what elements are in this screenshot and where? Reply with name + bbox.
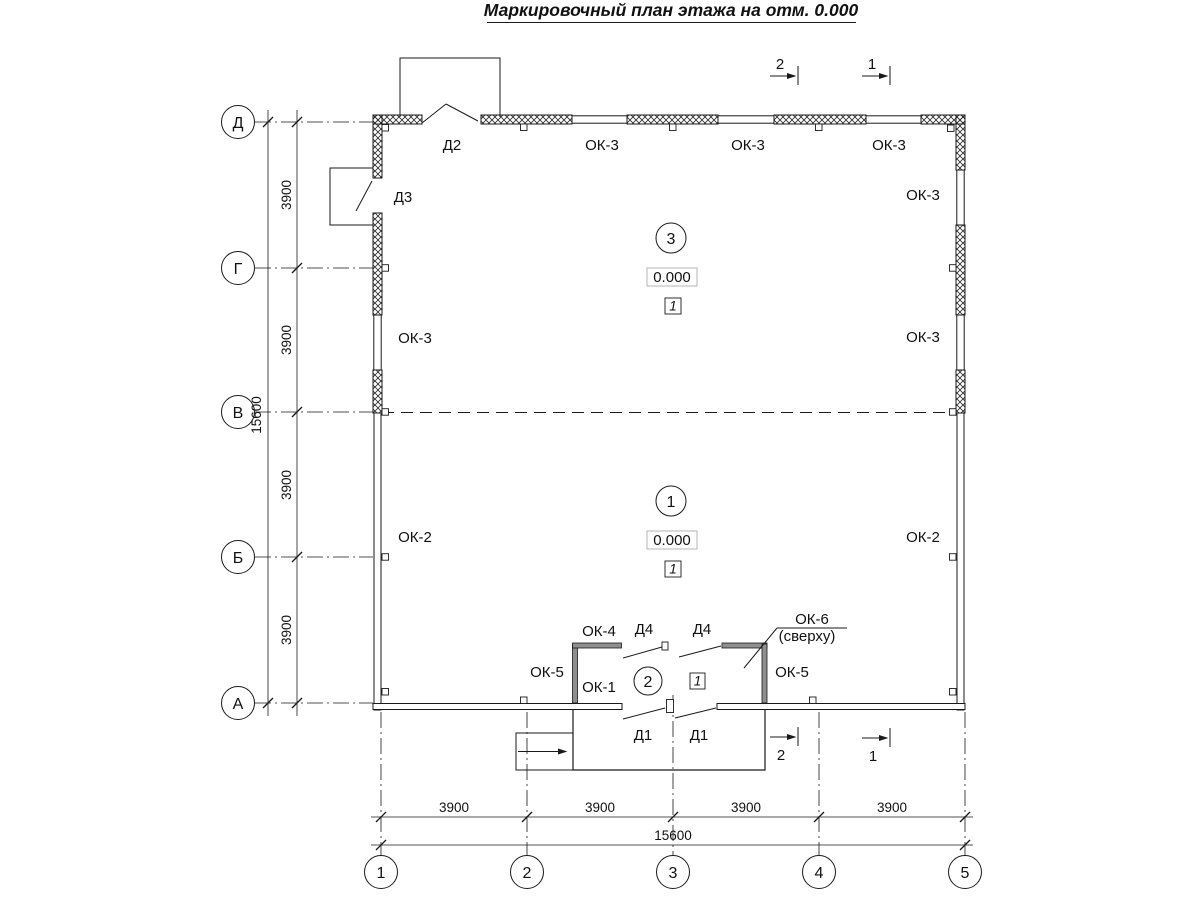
section-2-bottom-label: 2 <box>777 747 785 764</box>
bottom-wall-right <box>717 704 965 710</box>
label-ok3-top-2: ОК-3 <box>731 137 765 154</box>
section-2-top-label: 2 <box>776 56 784 73</box>
axis-label-col-3: 3 <box>669 865 678 882</box>
room-number-vestibule: 2 <box>644 674 653 691</box>
floor-plan-drawing: Маркировочный план этажа на отм. 0.000 Д… <box>0 0 1200 900</box>
dim-left-seg-3: 3900 <box>279 470 294 500</box>
label-ok4: ОК-4 <box>582 623 616 640</box>
title-block: Маркировочный план этажа на отм. 0.000 <box>484 0 859 23</box>
dim-bottom-total: 15600 <box>654 828 692 843</box>
window-ok3-top-3 <box>866 116 921 123</box>
window-ok3-top-1 <box>572 116 627 123</box>
level-mark-lower: 0.000 <box>653 532 691 549</box>
room-marker-lower: 1 0.000 1 <box>647 486 697 577</box>
door-d3-leaf <box>356 181 372 211</box>
label-ok2-right: ОК-2 <box>906 529 940 546</box>
label-ok3-top-3: ОК-3 <box>872 137 906 154</box>
section-1-top-label: 1 <box>868 56 876 73</box>
axis-label-row-3: В <box>233 405 244 422</box>
label-ok3-top-1: ОК-3 <box>585 137 619 154</box>
sill-markers <box>382 124 956 704</box>
window-ok3-top-2 <box>718 116 774 123</box>
mark-labels: Д2 Д3 ОК-3 ОК-3 ОК-3 ОК-3 ОК-3 ОК-3 ОК-2… <box>394 137 940 744</box>
label-d1-1: Д1 <box>634 727 653 744</box>
label-ok5-left: ОК-5 <box>530 664 564 681</box>
label-ok6: ОК-6 <box>795 611 829 628</box>
dim-left-total: 15600 <box>249 396 264 434</box>
axis-label-col-2: 2 <box>523 865 532 882</box>
door-d3-porch <box>330 168 373 225</box>
floor-type-vestibule: 1 <box>694 674 702 689</box>
label-d4-2: Д4 <box>693 621 712 638</box>
floor-type-upper: 1 <box>669 299 677 314</box>
label-ok3-right-2: ОК-3 <box>906 329 940 346</box>
door-d4-mullion <box>662 642 668 650</box>
window-band-ok2-left <box>374 413 381 710</box>
axis-label-row-4: Б <box>233 550 244 567</box>
room-number-lower: 1 <box>667 494 676 511</box>
drawing-sheet: Маркировочный план этажа на отм. 0.000 Д… <box>0 0 1200 900</box>
axis-label-row-5: А <box>233 696 244 713</box>
label-ok1: ОК-1 <box>582 679 616 696</box>
window-band-ok2-right <box>957 413 964 710</box>
section-1-bottom-label: 1 <box>869 748 877 765</box>
label-d3: Д3 <box>394 189 413 206</box>
dim-bottom-seg-2: 3900 <box>585 800 615 815</box>
label-d4-1: Д4 <box>635 621 654 638</box>
dim-left-seg-2: 3900 <box>279 325 294 355</box>
label-ok5-right: ОК-5 <box>775 664 809 681</box>
label-ok2-left: ОК-2 <box>398 529 432 546</box>
door-d4-leaf-2 <box>679 646 721 657</box>
label-ok3-left: ОК-3 <box>398 330 432 347</box>
bottom-axis-grid: 3900 3900 3900 3900 15600 1 2 3 4 5 <box>365 695 982 889</box>
page-title: Маркировочный план этажа на отм. 0.000 <box>484 0 859 20</box>
axis-label-col-4: 4 <box>815 865 824 882</box>
dim-bottom-seg-3: 3900 <box>731 800 761 815</box>
door-d4-leaf-1 <box>623 647 662 658</box>
label-d1-2: Д1 <box>690 727 709 744</box>
label-d2: Д2 <box>443 137 462 154</box>
window-ok3-right-1 <box>957 170 964 225</box>
window-ok3-right-2 <box>957 315 964 370</box>
dim-bottom-seg-1: 3900 <box>439 800 469 815</box>
door-d2-porch <box>400 58 500 123</box>
room-number-upper: 3 <box>667 231 676 248</box>
level-mark-upper: 0.000 <box>653 269 691 286</box>
door-d2-leaf-1 <box>422 104 446 123</box>
room-marker-vestibule: 2 1 <box>634 667 705 695</box>
door-d2-leaf-2 <box>446 104 478 121</box>
axis-label-row-2: Г <box>234 261 243 278</box>
axis-label-col-5: 5 <box>961 865 970 882</box>
axis-label-row-1: Д <box>233 115 244 132</box>
dim-left-seg-1: 3900 <box>279 180 294 210</box>
exterior-walls <box>373 115 965 713</box>
label-ok6-note: (сверху) <box>779 628 836 645</box>
bottom-wall-left <box>373 704 622 710</box>
floor-type-lower: 1 <box>669 562 677 577</box>
room-marker-upper: 3 0.000 1 <box>647 223 697 314</box>
entry-door-mullion <box>667 700 674 713</box>
dim-left-seg-4: 3900 <box>279 615 294 645</box>
window-ok3-left <box>374 315 381 370</box>
dim-bottom-seg-4: 3900 <box>877 800 907 815</box>
axis-label-col-1: 1 <box>377 865 386 882</box>
section-marks: 2 1 2 1 <box>770 56 890 765</box>
label-ok3-right-1: ОК-3 <box>906 187 940 204</box>
